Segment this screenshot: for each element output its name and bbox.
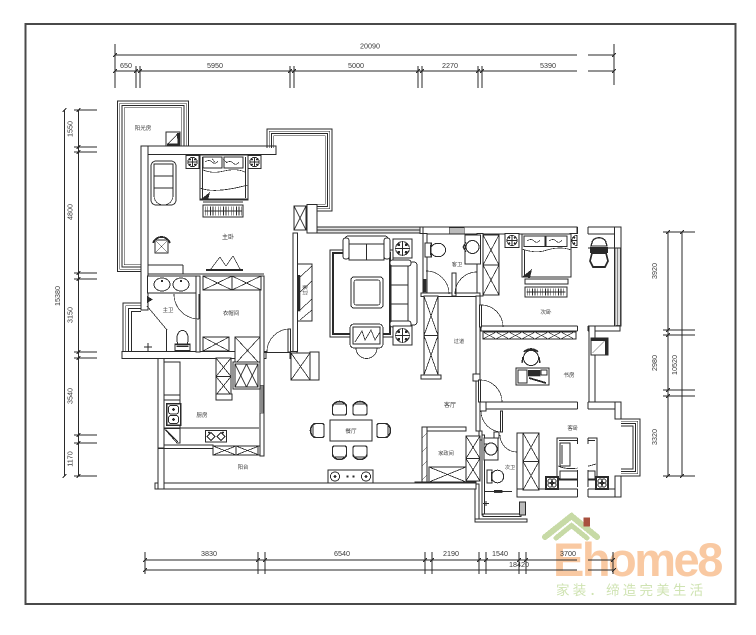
svg-text:20090: 20090 <box>360 42 380 51</box>
svg-text:主卫: 主卫 <box>163 306 174 314</box>
svg-text:3920: 3920 <box>650 263 659 279</box>
svg-text:18420: 18420 <box>509 560 529 569</box>
svg-text:6540: 6540 <box>334 549 350 558</box>
svg-text:Ehome8: Ehome8 <box>553 533 722 586</box>
svg-text:主卧: 主卧 <box>222 233 234 241</box>
svg-text:4800: 4800 <box>66 204 75 220</box>
svg-text:5390: 5390 <box>540 61 556 70</box>
svg-text:5950: 5950 <box>207 61 223 70</box>
svg-text:1170: 1170 <box>66 451 75 466</box>
svg-text:客厅: 客厅 <box>444 401 456 409</box>
svg-text:15380: 15380 <box>53 286 62 306</box>
svg-text:次卫: 次卫 <box>505 464 515 471</box>
svg-text:阳台: 阳台 <box>238 463 249 471</box>
svg-text:餐厅: 餐厅 <box>345 427 357 435</box>
svg-text:2270: 2270 <box>442 61 458 70</box>
svg-text:5000: 5000 <box>348 61 364 70</box>
svg-text:家政间: 家政间 <box>438 449 454 457</box>
svg-text:1550: 1550 <box>66 121 75 137</box>
svg-text:2980: 2980 <box>650 355 659 371</box>
svg-text:1540: 1540 <box>492 549 508 558</box>
svg-text:阳光房: 阳光房 <box>135 124 152 132</box>
svg-text:家装．缔造完美生活: 家装．缔造完美生活 <box>556 582 706 598</box>
svg-text:厨房: 厨房 <box>196 411 208 419</box>
svg-text:3320: 3320 <box>650 429 659 445</box>
svg-text:衣帽间: 衣帽间 <box>223 309 239 317</box>
svg-text:客卫: 客卫 <box>452 260 462 268</box>
svg-text:10520: 10520 <box>670 355 679 375</box>
svg-text:过道: 过道 <box>454 337 464 345</box>
svg-text:3700: 3700 <box>560 549 576 558</box>
svg-text:3150: 3150 <box>66 307 75 323</box>
svg-text:客卧: 客卧 <box>567 424 579 432</box>
svg-text:650: 650 <box>120 61 132 70</box>
svg-text:次卧: 次卧 <box>540 308 552 316</box>
svg-text:3830: 3830 <box>201 549 217 558</box>
svg-text:3540: 3540 <box>66 388 75 404</box>
svg-text:2190: 2190 <box>443 549 459 558</box>
svg-text:书房: 书房 <box>563 371 575 379</box>
svg-text:过道: 过道 <box>301 285 309 295</box>
